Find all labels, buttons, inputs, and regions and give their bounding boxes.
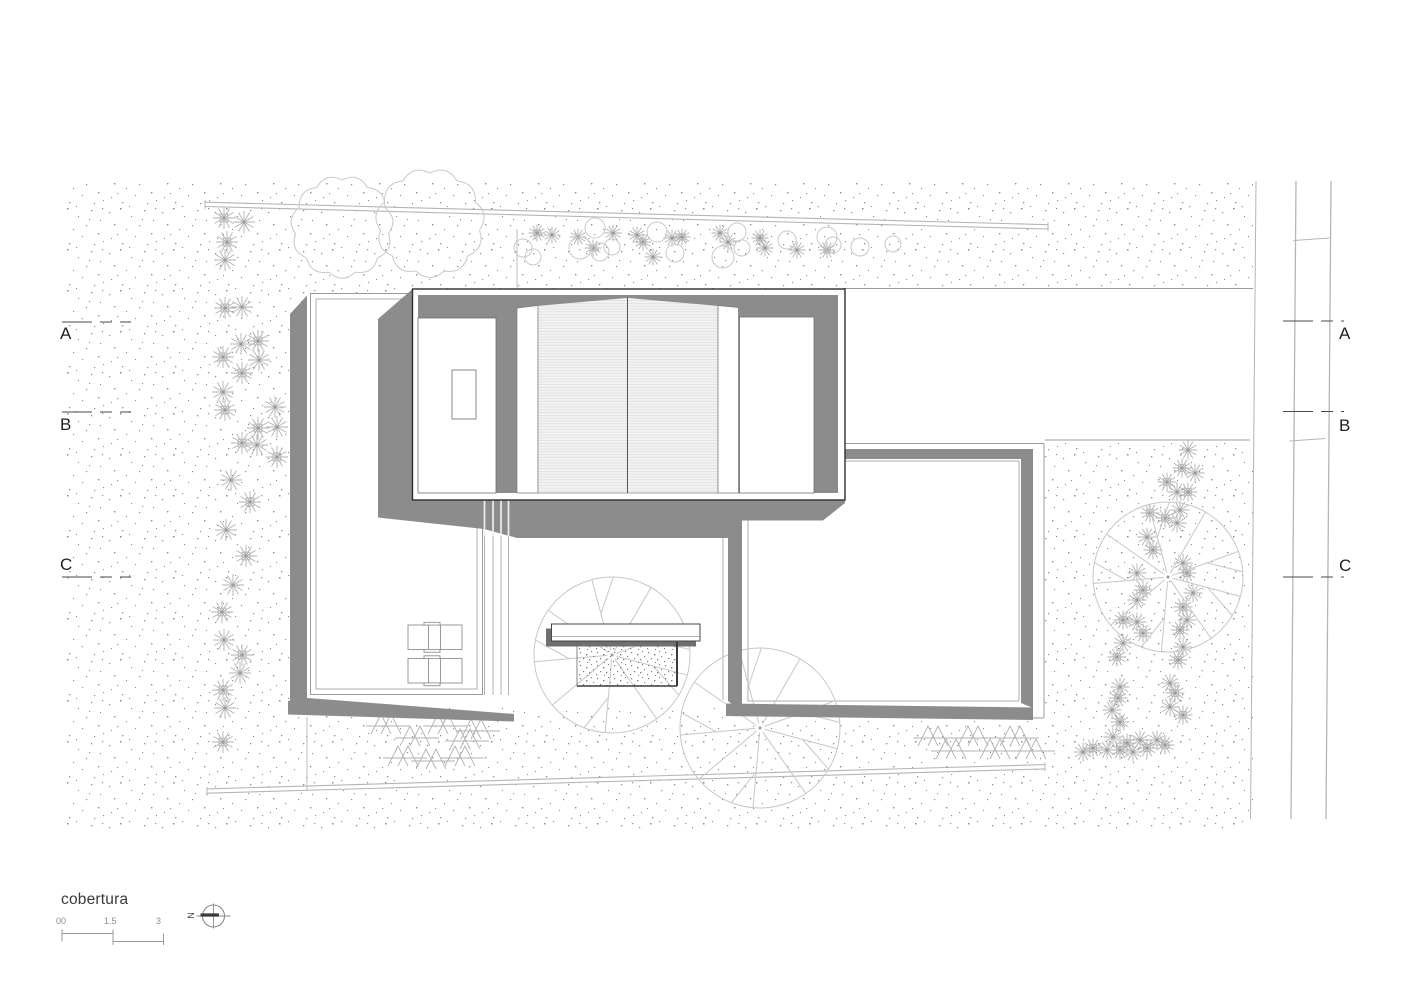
section-letter-b-right: B	[1339, 417, 1350, 434]
roof-plan-main	[413, 289, 846, 500]
terrace-wall	[290, 296, 307, 712]
courtyard-wall-left	[728, 521, 742, 713]
lounge-chair-2	[408, 656, 462, 686]
section-letter-a-left: A	[60, 325, 71, 342]
north-arrow	[197, 904, 231, 929]
scale-label-3: 3	[156, 917, 161, 926]
section-letter-a-right: A	[1339, 325, 1350, 342]
planter	[577, 642, 677, 686]
roof-strip-right	[718, 306, 739, 494]
roof-hatch-panel-1	[538, 298, 628, 494]
scale-label-1-5: 1.5	[104, 917, 117, 926]
street-right	[1251, 181, 1332, 819]
roof-hatch-panel-2	[628, 298, 719, 494]
patio-wall-right	[1021, 449, 1033, 708]
site-plan-svg	[0, 0, 1414, 1000]
scale-label-0: 00	[56, 917, 66, 926]
roof-plan-sheet: A B C A B C cobertura 00 1.5 3 N	[0, 0, 1414, 1000]
north-label: N	[187, 912, 196, 919]
scale-bar	[62, 930, 164, 946]
roof-panel-right	[740, 317, 815, 493]
drawing-title: cobertura	[61, 892, 128, 908]
patio-wall-top	[843, 449, 1033, 459]
roof-shadow-left	[378, 289, 413, 518]
roof-skylight	[452, 370, 476, 419]
section-letter-c-right: C	[1339, 557, 1351, 574]
section-letter-b-left: B	[60, 416, 71, 433]
roof-strip-left	[517, 306, 538, 494]
driveway	[843, 288, 1253, 443]
lounge-chair-1	[408, 622, 462, 652]
section-letter-c-left: C	[60, 556, 72, 573]
